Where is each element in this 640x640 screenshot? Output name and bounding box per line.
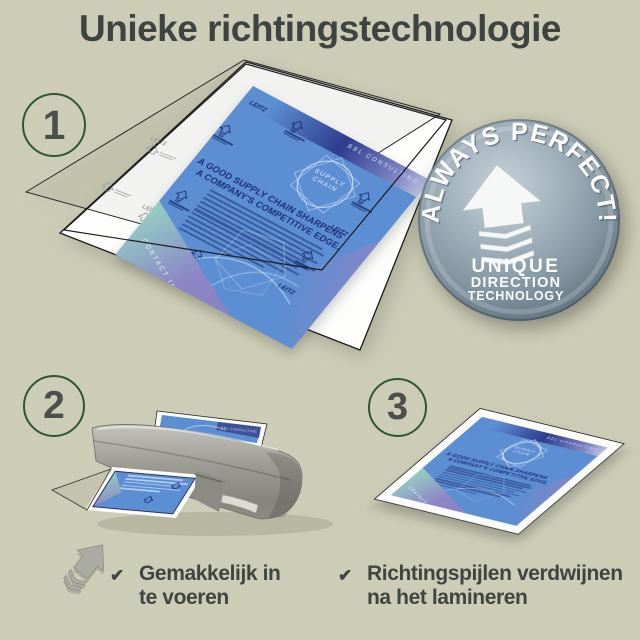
document-entering-laminator (85, 467, 203, 518)
feed-direction-arrow-icon (53, 534, 117, 602)
direction-arrow-icon (146, 143, 160, 156)
infographic-canvas: Unieke richtingstechnologie LEITZ LEITZ … (0, 0, 640, 640)
step-1-circle: 1 (22, 93, 86, 157)
checklist-item-arrows-disappear: Richtingspijlen verdwijnen na het lamine… (367, 562, 623, 609)
check-icon: ✔ (338, 566, 352, 586)
badge-graphic: ALWAYS PERFECT! ALWAYS PERFECT! UNIQUE D… (416, 116, 624, 324)
direction-arrow-icon (101, 180, 115, 193)
step-number: 1 (43, 102, 66, 149)
step-number: 3 (387, 386, 408, 429)
direction-arrow-icon (140, 495, 156, 506)
always-perfect-badge: ALWAYS PERFECT! ALWAYS PERFECT! UNIQUE D… (416, 116, 624, 324)
step-2-circle: 2 (23, 375, 85, 437)
laminator-exit-tray (203, 492, 258, 513)
printed-direction-arrow (211, 122, 254, 154)
page-title: Unieke richtingstechnologie (0, 8, 640, 50)
pouch-direction-mark: LEITZ (146, 136, 181, 162)
check-icon: ✔ (110, 566, 124, 586)
contact-info-label: CONTACT Info (407, 486, 437, 514)
step-3-circle: 3 (368, 378, 427, 437)
laminated-doc-exiting: BBL CONSULTING (154, 411, 267, 448)
pouch-direction-mark (101, 180, 133, 200)
document-brand: BBL CONSULTING (545, 436, 600, 452)
printed-direction-arrow (350, 189, 393, 221)
laminator-end-cap (266, 452, 301, 518)
badge-caption-unique: UNIQUE (472, 256, 561, 277)
checklist-item-easy-feed: Gemakkelijk in te voeren (139, 562, 280, 609)
document-corner-gradient (94, 472, 134, 508)
step-number: 2 (43, 384, 65, 428)
leitz-logo: LEITZ (149, 136, 167, 148)
badge-caption-technology: TECHNOLOGY (468, 289, 564, 303)
document-in-pouch: BBL CONSULTING LEITZ LEITZ LEITZ SUPPLY … (115, 86, 430, 349)
document-brand: BBL CONSULTING (221, 426, 257, 434)
